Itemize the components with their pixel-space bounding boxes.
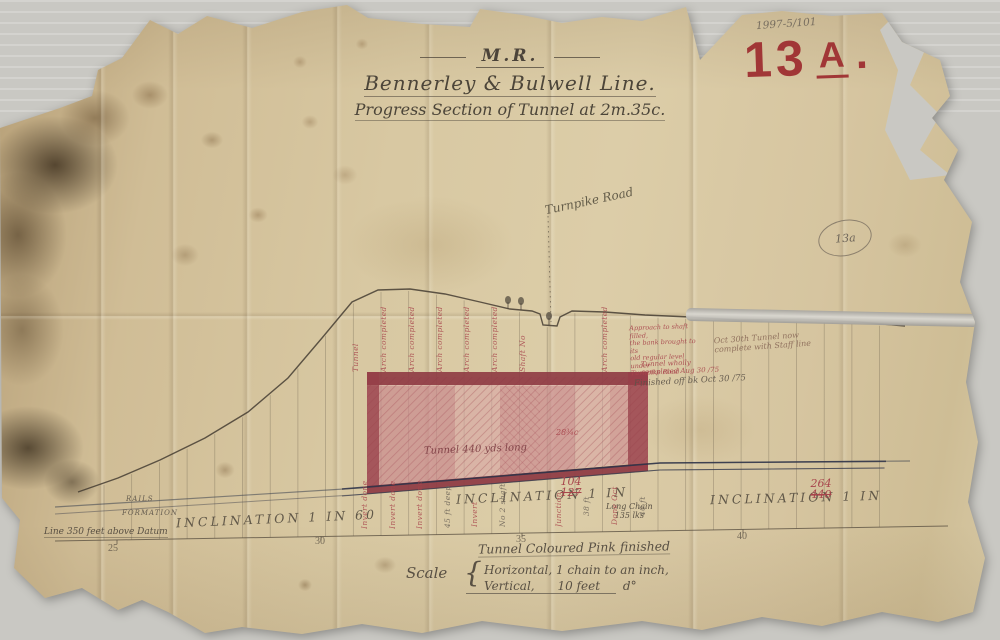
progress-note: 45 ft deep (442, 480, 453, 528)
paper-sheet: 1997-5/101 13 A . 13a M.R. Bennerley & B… (0, 0, 1000, 640)
progress-note: Invert done Jan 8.73 (414, 479, 425, 529)
progress-note: Arch completed Feb 10.73 (378, 291, 389, 372)
progress-note: Shaft No 2 (517, 331, 528, 372)
progress-note: Arch completed Dec 30.72 (406, 292, 417, 372)
progress-note: Arch completed Jan 16.73 (434, 294, 445, 372)
progress-note: Done Oct 73 (609, 485, 620, 525)
progress-note: 40 ft (637, 488, 648, 516)
progress-note: Arch completed Oct 4.72 (489, 305, 500, 372)
progress-note: Arch completed Sep 18.72 (599, 303, 610, 372)
progress-note: Invert done Mar 3.73 (359, 477, 370, 529)
paper-wrap: 1997-5/101 13 A . 13a M.R. Bennerley & B… (0, 0, 1000, 640)
progress-note: Invert done Apr 2.73 (469, 480, 480, 527)
progress-note: Invert done Feb 12.73 (387, 477, 398, 529)
scanned-drawing-scene: 1997-5/101 13 A . 13a M.R. Bennerley & B… (0, 0, 1000, 640)
progress-notes-layer: Tunnel commenced Augt 7.72Arch completed… (0, 0, 1000, 640)
progress-note: Junction length (553, 483, 564, 527)
progress-note: Tunnel commenced Augt 7.72 (350, 296, 361, 372)
progress-note: No 2 shaft (497, 481, 508, 527)
progress-note: 38 ft (581, 486, 592, 516)
progress-note: Arch completed Nov 9.72 (461, 299, 472, 372)
